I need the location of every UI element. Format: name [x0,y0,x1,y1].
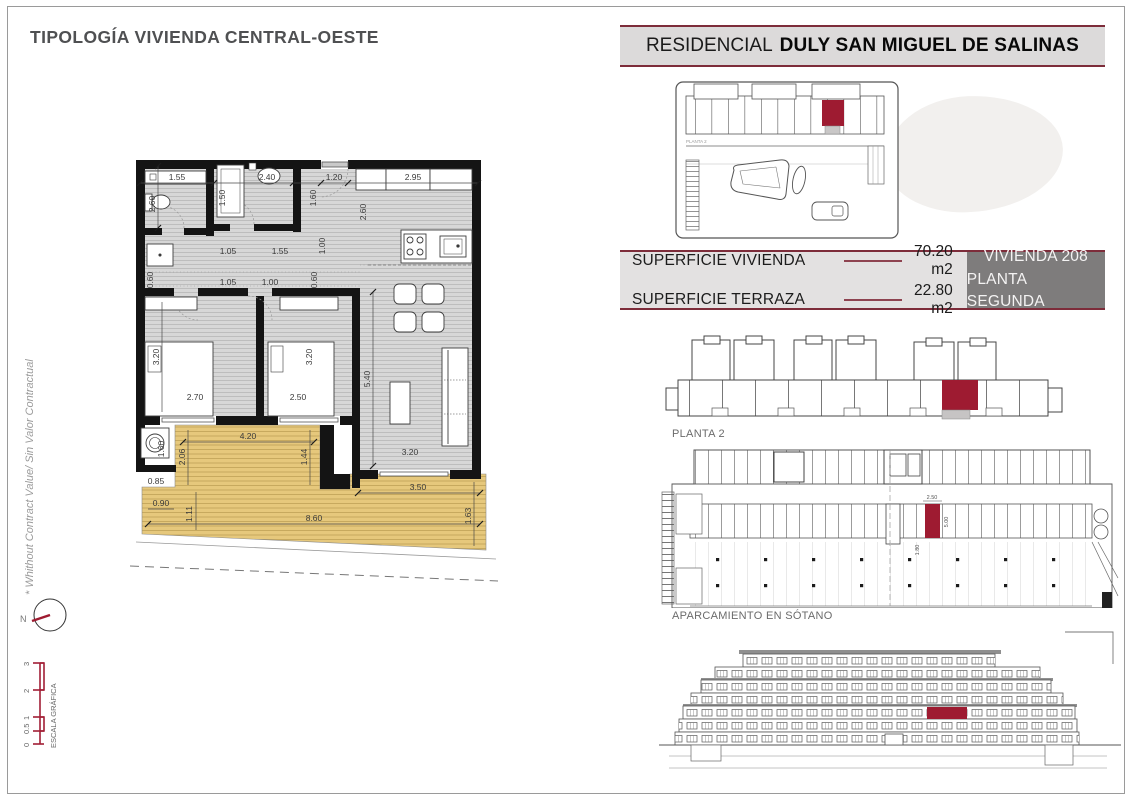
svg-text:2.60: 2.60 [147,195,157,212]
scale-tick-1: 1 [22,716,31,720]
svg-text:8.60: 8.60 [306,513,323,523]
svg-text:3.20: 3.20 [402,447,419,457]
svg-text:0.90: 0.90 [153,498,170,508]
planta2-label: PLANTA 2 [672,428,725,440]
contract-note: * Whithout Contract Value/ Sin Valor Con… [24,345,36,595]
parking-label: APARCAMIENTO EN SÓTANO [672,610,833,622]
svg-text:3.50: 3.50 [410,482,427,492]
svg-text:1.44: 1.44 [299,448,309,465]
dash-rule [844,299,902,301]
svg-text:0.60: 0.60 [309,271,319,288]
svg-text:2.50: 2.50 [290,392,307,402]
svg-text:1.55: 1.55 [272,246,289,256]
highlighted-terrace [942,410,970,419]
site-plan-tiny-label: PLANTA 2 [686,139,707,144]
svg-text:3.20: 3.20 [304,348,314,365]
north-compass: N [15,592,85,642]
highlighted-unit [822,100,844,126]
unit-badge: VIVIENDA 208 PLANTA SEGUNDA [967,252,1105,308]
header-prefix: RESIDENCIAL [646,35,773,57]
surface-row: SUPERFICIE VIVIENDA 70.20 m2 [632,243,967,279]
svg-text:1.11: 1.11 [184,506,194,522]
svg-text:3.20: 3.20 [151,348,161,365]
page-title: TIPOLOGÍA VIVIENDA CENTRAL-OESTE [30,27,379,48]
project-header: RESIDENCIAL DULY SAN MIGUEL DE SALINAS [620,25,1105,67]
svg-text:2.50: 2.50 [927,495,938,501]
surface-label: SUPERFICIE TERRAZA [632,291,840,309]
dash-rule [844,260,902,262]
scale-tick-0: 0 [22,743,31,747]
graphic-scale: 3 2 1 0.5 0 ESCALA GRÁFICA [10,648,70,788]
svg-text:1.63: 1.63 [463,507,473,524]
svg-text:1.60: 1.60 [308,189,318,206]
svg-text:5.00: 5.00 [944,517,950,528]
svg-text:1.05: 1.05 [220,277,237,287]
svg-text:1.55: 1.55 [169,172,186,182]
highlighted-parking-stall [925,504,940,538]
scale-label: ESCALA GRÁFICA [49,683,58,748]
svg-text:1.60: 1.60 [156,440,166,457]
scale-tick-05: 0.5 [22,724,31,734]
header-project-name: DULY SAN MIGUEL DE SALINAS [780,35,1079,57]
floor-plan-drawing: 1.55 2.40 1.20 2.95 2.60 1.50 1.60 2.60 … [128,152,503,602]
corner-lines [1065,632,1113,664]
surface-value: 70.20 m2 [914,243,967,279]
surface-rows: SUPERFICIE VIVIENDA 70.20 m2 SUPERFICIE … [620,252,967,308]
scale-tick-2: 2 [22,689,31,693]
svg-text:2.40: 2.40 [259,172,276,182]
parking-drawing: 2.50 5.00 1.80 [656,446,1131,608]
unit-number: VIVIENDA 208 [984,246,1088,268]
surface-label: SUPERFICIE VIVIENDA [632,252,840,270]
svg-text:2.70: 2.70 [187,392,204,402]
surface-value: 22.80 m2 [914,282,967,318]
surface-row: SUPERFICIE TERRAZA 22.80 m2 [632,282,967,318]
svg-text:0.60: 0.60 [145,271,155,288]
svg-text:5.40: 5.40 [362,370,372,387]
floor-bands [675,650,1079,745]
scale-tick-3: 3 [22,662,31,666]
svg-text:0.85: 0.85 [148,476,165,486]
highlighted-unit [942,380,978,410]
site-plan-drawing: PLANTA 2 [662,76,927,246]
unit-floor: PLANTA SEGUNDA [967,269,1105,314]
surface-summary: SUPERFICIE VIVIENDA 70.20 m2 SUPERFICIE … [620,250,1105,310]
svg-text:4.20: 4.20 [240,431,257,441]
svg-text:1.20: 1.20 [326,172,343,182]
svg-text:2.95: 2.95 [405,172,422,182]
svg-text:1.00: 1.00 [262,277,279,287]
highlighted-unit [927,707,967,719]
svg-text:1.50: 1.50 [217,189,227,206]
svg-text:2.06: 2.06 [177,448,187,465]
svg-text:2.60: 2.60 [358,203,368,220]
svg-text:1.00: 1.00 [317,237,327,254]
elevation-drawing [655,628,1125,793]
svg-text:1.05: 1.05 [220,246,237,256]
plot-line-dashed [130,566,498,581]
compass-n-label: N [20,614,27,624]
planta2-drawing [656,328,1076,428]
plan-sheet: TIPOLOGÍA VIVIENDA CENTRAL-OESTE [0,0,1132,800]
svg-text:1.80: 1.80 [915,545,921,556]
